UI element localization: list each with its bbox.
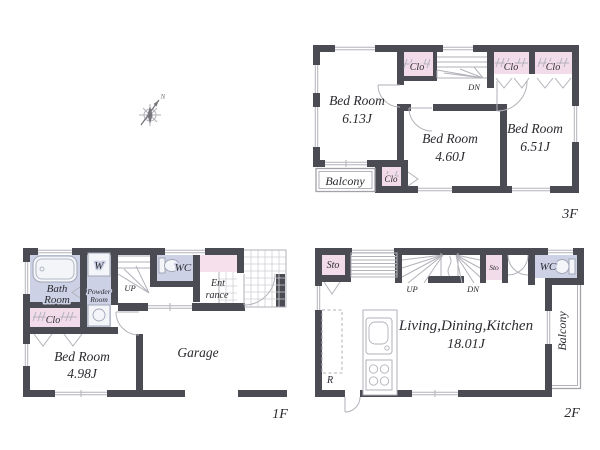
ldk-name: Living,Dining,Kitchen <box>398 318 533 334</box>
balcony-3f-label: Balcony <box>325 174 365 188</box>
compass-rose: N <box>139 93 166 126</box>
stairs-up-1f-label: UP <box>124 283 135 293</box>
floorplan-canvas: N <box>0 0 600 450</box>
garage-label: Garage <box>177 345 218 360</box>
bedroom-1f-name: Bed Room <box>54 349 110 364</box>
floor-plan-1f: Bath Room W Powder Room WC Clo Ent rance… <box>23 248 288 422</box>
balcony-2f-label: Balcony <box>555 311 569 351</box>
entrance-label-line2: rance <box>206 290 229 301</box>
bedroom-1f-area: 4.98J <box>67 366 98 381</box>
stair-run-2f <box>351 253 397 277</box>
toilet-2f <box>555 259 575 274</box>
stairs-dn-3f-label: DN <box>467 82 481 92</box>
bathtub <box>33 256 77 282</box>
floor-label-2f: 2F <box>564 406 580 421</box>
compass-north-label: N <box>160 93 166 101</box>
ldk-area: 18.01J <box>447 337 486 352</box>
bedroom2-3f-area: 4.60J <box>435 149 466 164</box>
closet-top-3f-label: Clo <box>410 62 424 73</box>
refrigerator-label: R <box>326 375 333 386</box>
bedroom1-3f-area: 6.13J <box>342 111 373 126</box>
closet-balcony-3f-label: Clo <box>384 174 398 184</box>
bedroom2-3f-name: Bed Room <box>422 131 478 146</box>
stairs-3f <box>437 57 487 78</box>
closet-right2-3f-label: Clo <box>546 62 560 73</box>
stairs-dn-2f-label: DN <box>466 284 480 294</box>
floor-plan-3f: Bed Room 6.13J Bed Room 4.60J Bed Room 6… <box>313 45 579 222</box>
bedroom1-3f-name: Bed Room <box>329 93 385 108</box>
entrance-label-line1: Ent <box>210 278 225 289</box>
wc-2f-label: WC <box>540 261 557 273</box>
floor-label-3f: 3F <box>561 207 578 222</box>
floor-label-1f: 1F <box>272 407 288 422</box>
closet-right1-3f-label: Clo <box>504 62 518 73</box>
floorplan-svg: N <box>0 0 600 450</box>
powder-sink <box>88 305 110 326</box>
washer-label: W <box>94 260 104 272</box>
stairs-up-2f-label: UP <box>406 284 417 294</box>
refrigerator-space <box>322 310 342 373</box>
floor-plan-2f: Sto Sto WC Living,Dining,Kitchen 18.01J … <box>315 248 584 421</box>
bathroom-label-line2: Room <box>43 294 70 306</box>
powder-room-label-line2: Room <box>89 295 108 304</box>
closet-details-2f <box>324 282 340 294</box>
bedroom3-3f-name: Bed Room <box>507 121 563 136</box>
bedroom3-3f-area: 6.51J <box>520 139 551 154</box>
storage-small-label: Sto <box>489 263 499 272</box>
kitchen-counter <box>363 310 397 395</box>
closet-1f-label: Clo <box>46 315 60 326</box>
storage-left-label: Sto <box>327 260 340 271</box>
wc-1f-label: WC <box>175 262 192 274</box>
